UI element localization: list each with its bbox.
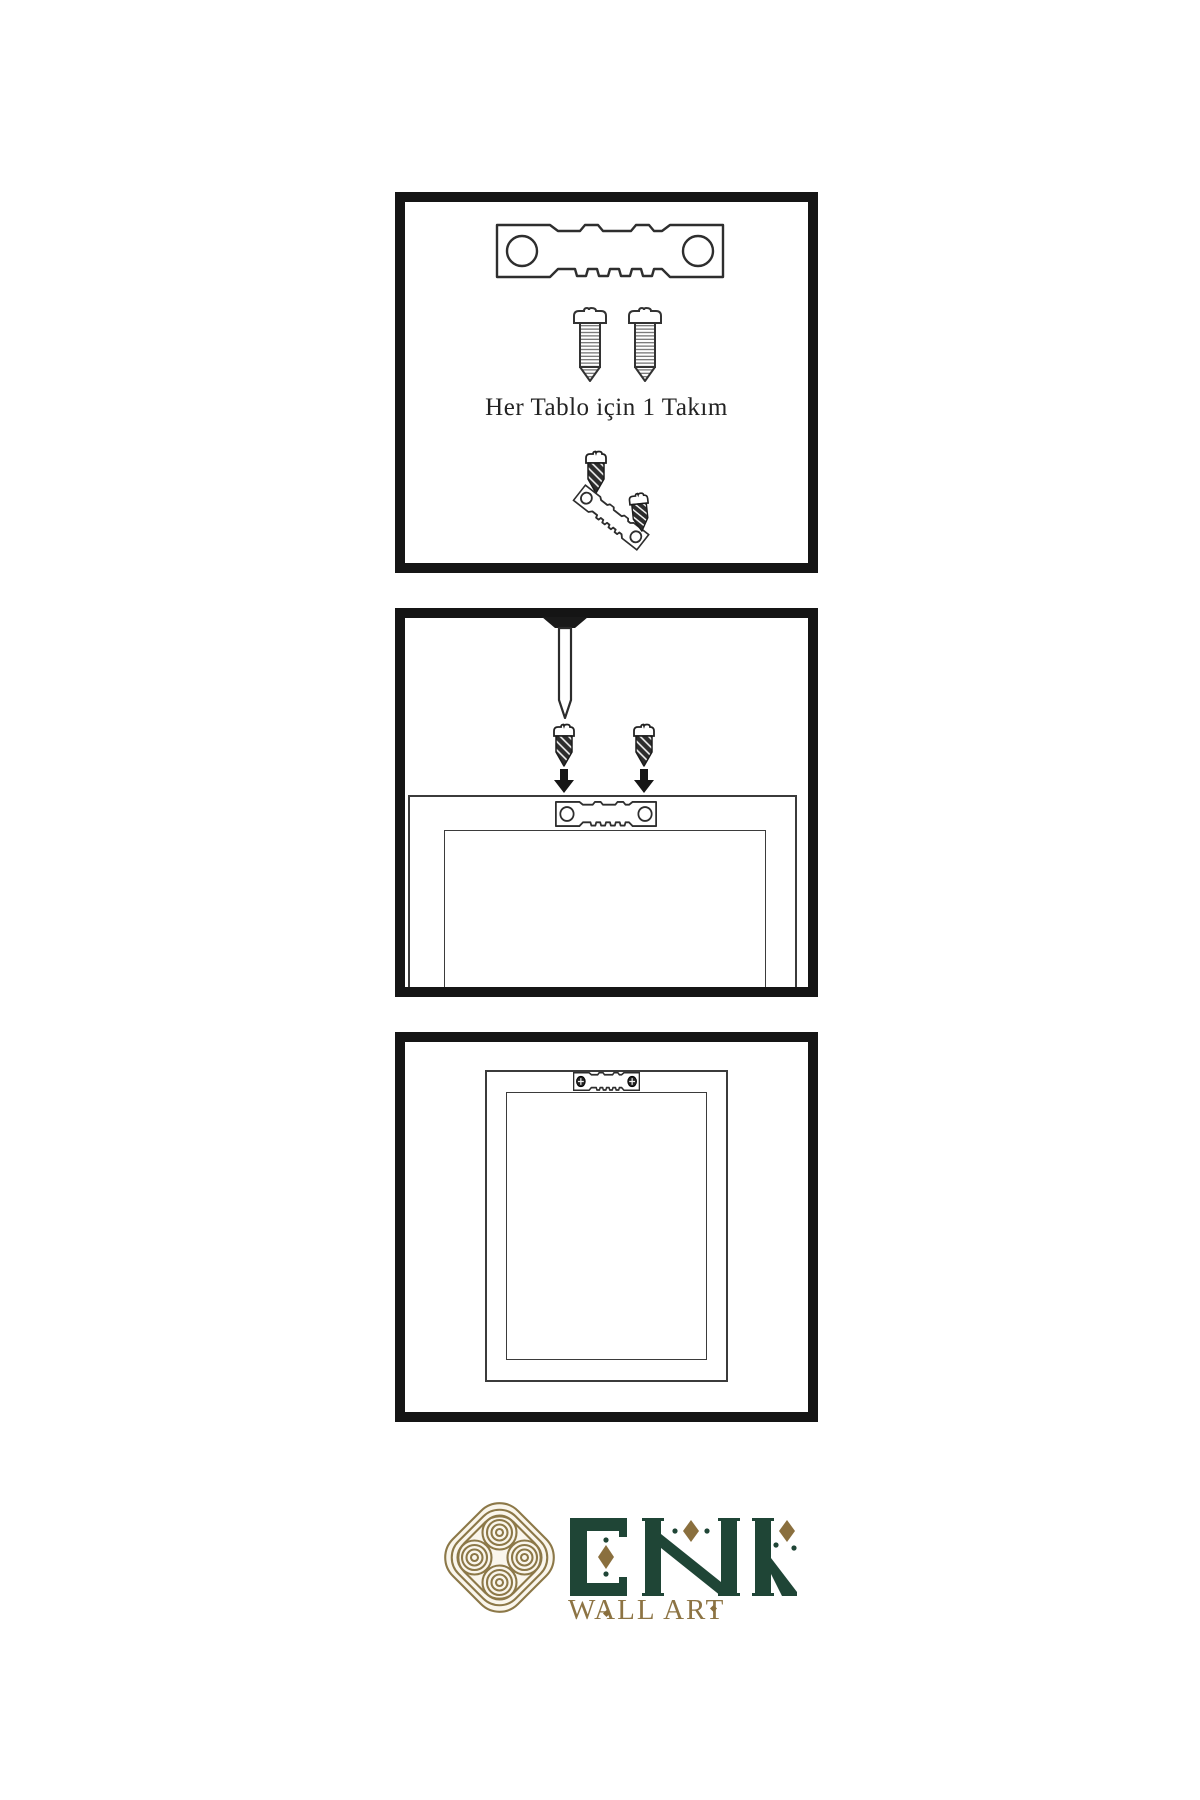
- mounted-sawtooth-hanger-icon: [573, 1072, 640, 1091]
- sawtooth-hanger-icon: [495, 223, 725, 279]
- brand-logo: ENK: [437, 1492, 797, 1632]
- dark-screw-icon: [626, 491, 654, 535]
- nail-icon: [542, 617, 588, 719]
- frame-back-inner: [506, 1092, 707, 1360]
- instruction-sheet: Her Tablo için 1 Takım: [0, 0, 1200, 1800]
- step-3-panel: [395, 1032, 818, 1422]
- brand-tagline: WALL ART: [568, 1594, 744, 1627]
- step-2-panel: [395, 608, 818, 997]
- screw-icon: [572, 307, 608, 383]
- knot-logo-icon: [437, 1492, 562, 1623]
- step-1-panel: Her Tablo için 1 Takım: [395, 192, 818, 573]
- frame-back-inner: [444, 830, 766, 987]
- step-1-caption: Her Tablo için 1 Takım: [405, 394, 808, 422]
- dark-screw-icon: [631, 723, 657, 769]
- sawtooth-hanger-icon: [555, 801, 657, 827]
- dark-screw-icon: [551, 723, 577, 769]
- arrow-down-icon: [554, 769, 574, 793]
- arrow-down-icon: [634, 769, 654, 793]
- brand-wordmark: ENK: [570, 1518, 797, 1596]
- screw-icon: [627, 307, 663, 383]
- brand-wordmark-letters: [570, 1518, 797, 1596]
